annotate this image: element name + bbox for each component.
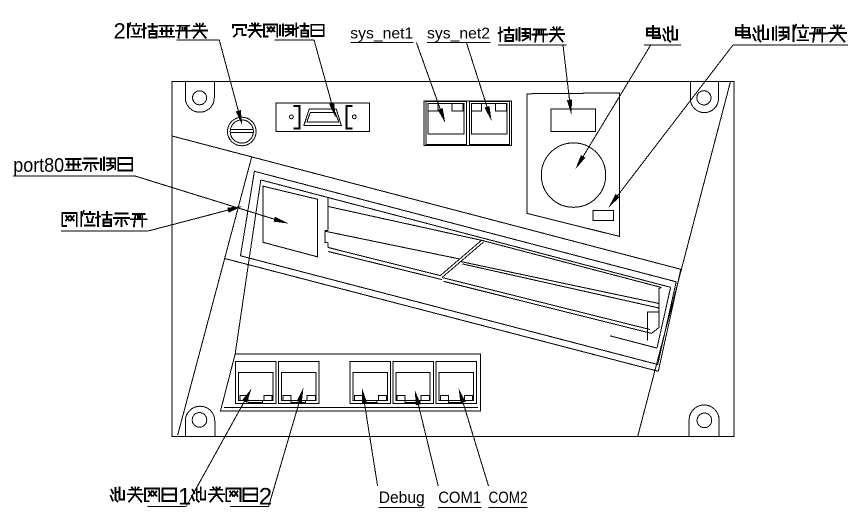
- svg-text:port80: port80: [13, 155, 64, 177]
- svg-text:Debug: Debug: [379, 488, 425, 507]
- svg-text:2: 2: [114, 19, 126, 44]
- svg-text:sys_net2: sys_net2: [427, 26, 490, 43]
- svg-text:COM1: COM1: [438, 488, 481, 507]
- svg-text:COM2: COM2: [489, 488, 528, 507]
- svg-text:sys_net1: sys_net1: [350, 26, 413, 43]
